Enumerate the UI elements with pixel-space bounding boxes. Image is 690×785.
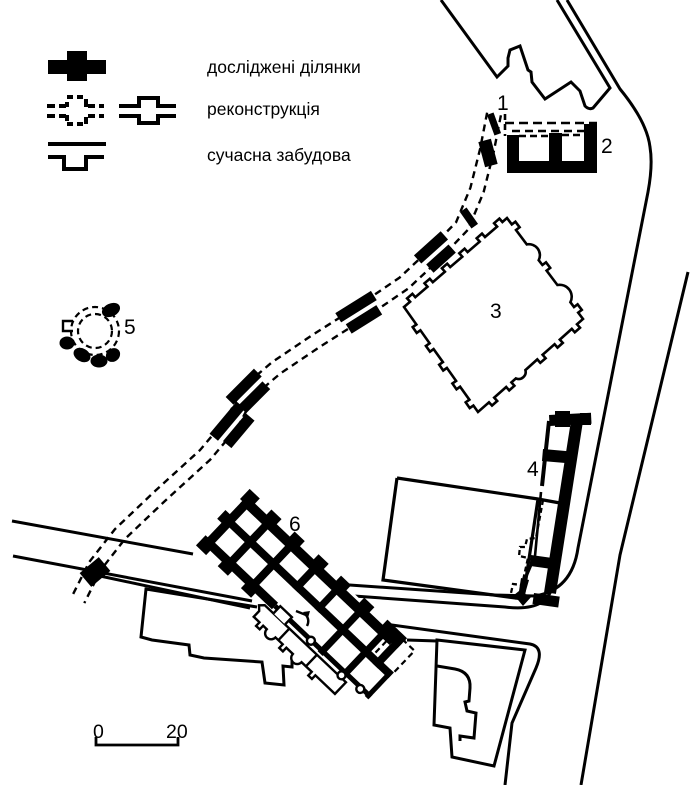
svg-text:4: 4 <box>527 458 539 481</box>
svg-text:реконструкція: реконструкція <box>207 99 320 119</box>
svg-text:2: 2 <box>601 135 613 158</box>
svg-text:20: 20 <box>166 721 188 743</box>
svg-text:досліджені ділянки: досліджені ділянки <box>207 57 361 77</box>
svg-text:6: 6 <box>289 513 301 536</box>
svg-text:сучасна забудова: сучасна забудова <box>207 145 351 165</box>
svg-text:3: 3 <box>490 300 502 323</box>
svg-text:1: 1 <box>497 92 509 115</box>
svg-text:0: 0 <box>93 721 104 743</box>
svg-text:5: 5 <box>124 316 136 339</box>
